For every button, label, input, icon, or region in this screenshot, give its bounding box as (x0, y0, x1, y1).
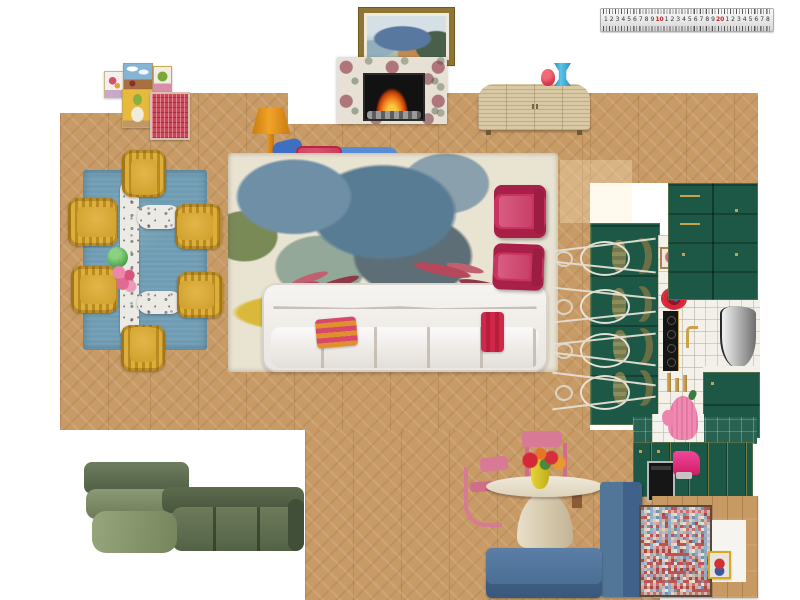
magenta-armchair-2[interactable] (492, 243, 545, 291)
ruler-number: 20 (716, 15, 724, 24)
chair-backrest (479, 456, 508, 473)
moodboard-canvas: 123456789101234567892012345678 (0, 0, 800, 600)
burner (667, 358, 676, 367)
credenza-knob (532, 104, 534, 109)
dining-rug[interactable] (83, 170, 207, 350)
cabinet-handle (680, 195, 700, 197)
sofa-arm (288, 499, 304, 551)
white-sectional-sofa[interactable] (262, 283, 548, 372)
blue-cabinet[interactable] (600, 482, 642, 597)
burner (667, 344, 676, 353)
stool-foot-ring (555, 299, 573, 315)
stainless-range-hood[interactable] (720, 306, 756, 368)
dining-chair-right-1[interactable] (175, 204, 222, 249)
red-flower-bouquet[interactable] (520, 446, 566, 472)
chair-frame (464, 467, 502, 527)
sofa-corner-cushion (92, 511, 177, 553)
burner (667, 330, 676, 339)
ruler-ticks-bottom (603, 26, 771, 31)
stool-foot-ring (555, 385, 573, 401)
rattan-credenza[interactable] (478, 84, 590, 130)
gallery-artwork-red-abstract[interactable] (150, 92, 190, 140)
cabinet-knob (657, 450, 660, 453)
ruler-number: 10 (655, 15, 663, 24)
fire-flames (375, 87, 409, 113)
mosaic-cell (707, 592, 710, 595)
wire-counter-stool[interactable] (552, 236, 660, 280)
dining-chair-left-1[interactable] (68, 198, 118, 246)
fireplace[interactable] (337, 57, 447, 124)
cabinet-handle (680, 223, 700, 225)
firebox (363, 73, 425, 121)
wire-counter-stool[interactable] (552, 370, 660, 414)
wire-counter-stool[interactable] (552, 328, 660, 372)
green-modular-sofa[interactable] (84, 459, 304, 555)
ruler[interactable]: 123456789101234567892012345678 (600, 8, 774, 32)
stool-foot-ring (555, 343, 573, 359)
cabinet-knob (735, 209, 738, 212)
brass-faucet[interactable] (686, 326, 698, 348)
magenta-armchair-1[interactable] (494, 185, 546, 238)
dining-chair-bottom[interactable] (121, 325, 165, 371)
wall-gap (288, 93, 340, 124)
candlestick (683, 375, 687, 392)
ruler-number: 8 (765, 15, 771, 24)
gallery-artwork-sky-landscape[interactable] (123, 63, 153, 92)
dining-chair-right-2[interactable] (177, 272, 223, 318)
cabinet-knob (682, 253, 685, 256)
red-pillow[interactable] (481, 312, 504, 352)
credenza-foot (577, 130, 582, 135)
mini-framed-artwork[interactable] (708, 551, 731, 579)
burner (667, 316, 676, 325)
sofa-seat-cushions (172, 507, 304, 551)
pink-oven-mitt[interactable] (668, 396, 698, 440)
mosaic-rug[interactable] (639, 505, 712, 597)
dining-chair-top[interactable] (122, 150, 166, 197)
gallery-artwork-yellow-figure[interactable] (122, 89, 153, 128)
ruler-numbers: 123456789101234567892012345678 (603, 15, 771, 24)
ruler-ticks-top (603, 9, 771, 14)
gas-cooktop[interactable] (663, 311, 679, 371)
gallery-artwork-pear[interactable] (153, 66, 172, 93)
cabinet-knob (639, 450, 642, 453)
brass-candlesticks[interactable] (666, 371, 688, 392)
pink-flower-bouquet[interactable] (111, 264, 137, 292)
marble-bench-bottom[interactable] (137, 291, 182, 314)
candlestick (667, 373, 671, 392)
blue-banquette[interactable] (486, 548, 602, 598)
light-wood-patch (560, 160, 632, 223)
red-vase[interactable] (541, 69, 555, 86)
credenza-knob (536, 104, 538, 109)
blue-vase[interactable] (554, 63, 571, 86)
cabinet-knob (711, 382, 714, 385)
cabinet-knob (735, 253, 738, 256)
chair-backrest (522, 431, 562, 447)
sofa-back-seam (273, 306, 536, 309)
painting-artwork (367, 16, 446, 57)
pink-espresso-machine[interactable] (673, 451, 700, 475)
candlestick (675, 378, 679, 392)
wire-counter-stool[interactable] (552, 284, 660, 328)
floor-lamp[interactable] (252, 108, 290, 134)
kitchen-upper-cabinets[interactable] (668, 183, 758, 300)
fire-logs (367, 111, 421, 119)
stool-foot-ring (555, 251, 573, 267)
credenza-foot (486, 130, 491, 135)
striped-pillow[interactable] (315, 316, 358, 348)
